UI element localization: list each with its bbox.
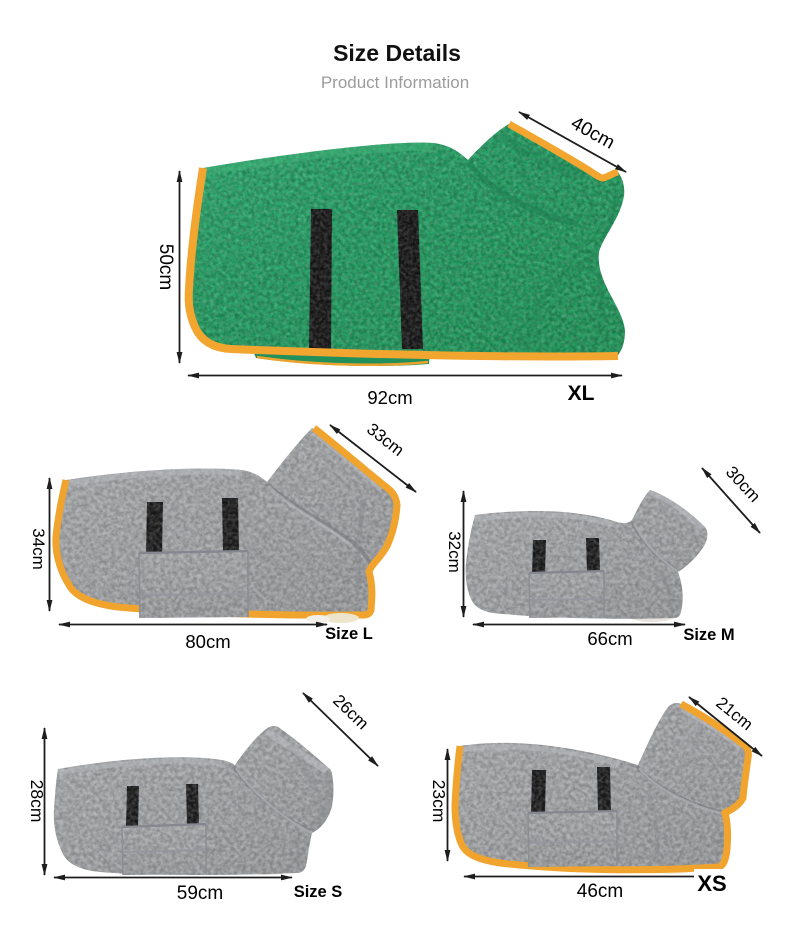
svg-text:66cm: 66cm — [587, 628, 632, 649]
svg-text:46cm: 46cm — [577, 881, 623, 902]
svg-text:50cm: 50cm — [155, 244, 176, 290]
svg-text:30cm: 30cm — [722, 463, 764, 506]
svg-text:Product Information: Product Information — [321, 73, 469, 92]
svg-text:34cm: 34cm — [29, 528, 48, 570]
svg-text:26cm: 26cm — [329, 691, 372, 734]
svg-text:Size S: Size S — [294, 883, 343, 901]
svg-text:Size Details: Size Details — [333, 40, 461, 66]
svg-text:28cm: 28cm — [27, 780, 47, 823]
svg-text:Size L: Size L — [325, 625, 373, 643]
svg-text:80cm: 80cm — [185, 631, 230, 652]
svg-text:Size M: Size M — [683, 626, 734, 644]
svg-text:32cm: 32cm — [445, 531, 464, 573]
svg-text:XL: XL — [568, 382, 595, 405]
svg-text:XS: XS — [697, 871, 726, 896]
svg-text:92cm: 92cm — [367, 387, 412, 408]
svg-text:40cm: 40cm — [567, 113, 618, 154]
svg-text:33cm: 33cm — [363, 419, 407, 460]
svg-text:59cm: 59cm — [177, 883, 223, 904]
svg-text:23cm: 23cm — [429, 780, 449, 823]
